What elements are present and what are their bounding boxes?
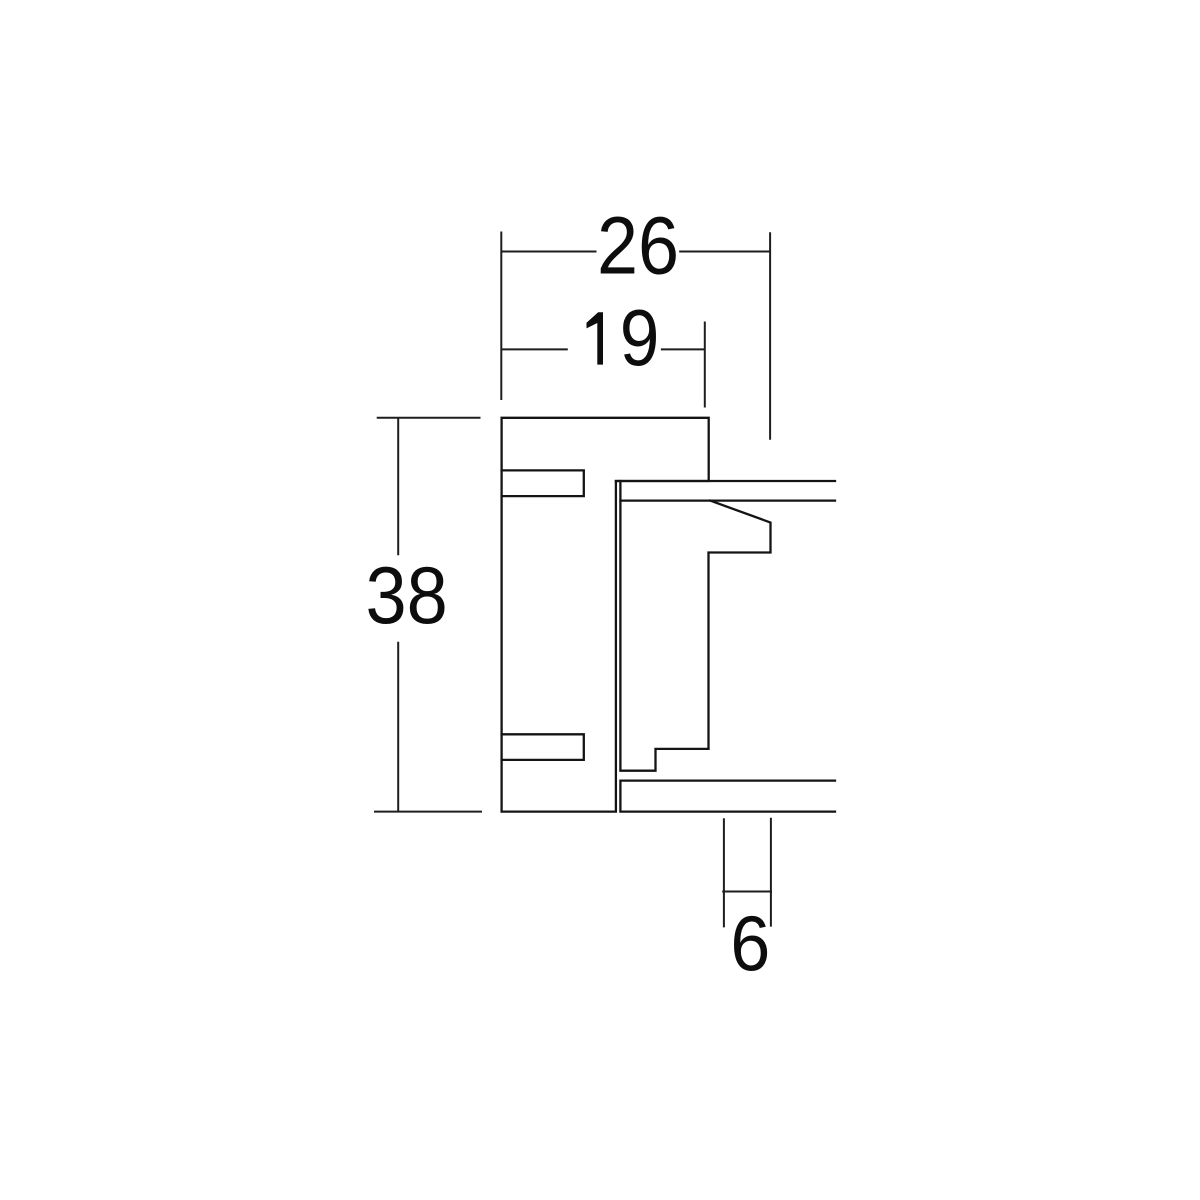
svg-text:26: 26 xyxy=(597,199,679,292)
svg-text:38: 38 xyxy=(365,551,447,641)
svg-text:6: 6 xyxy=(730,899,770,986)
svg-text:9: 9 xyxy=(620,293,660,383)
